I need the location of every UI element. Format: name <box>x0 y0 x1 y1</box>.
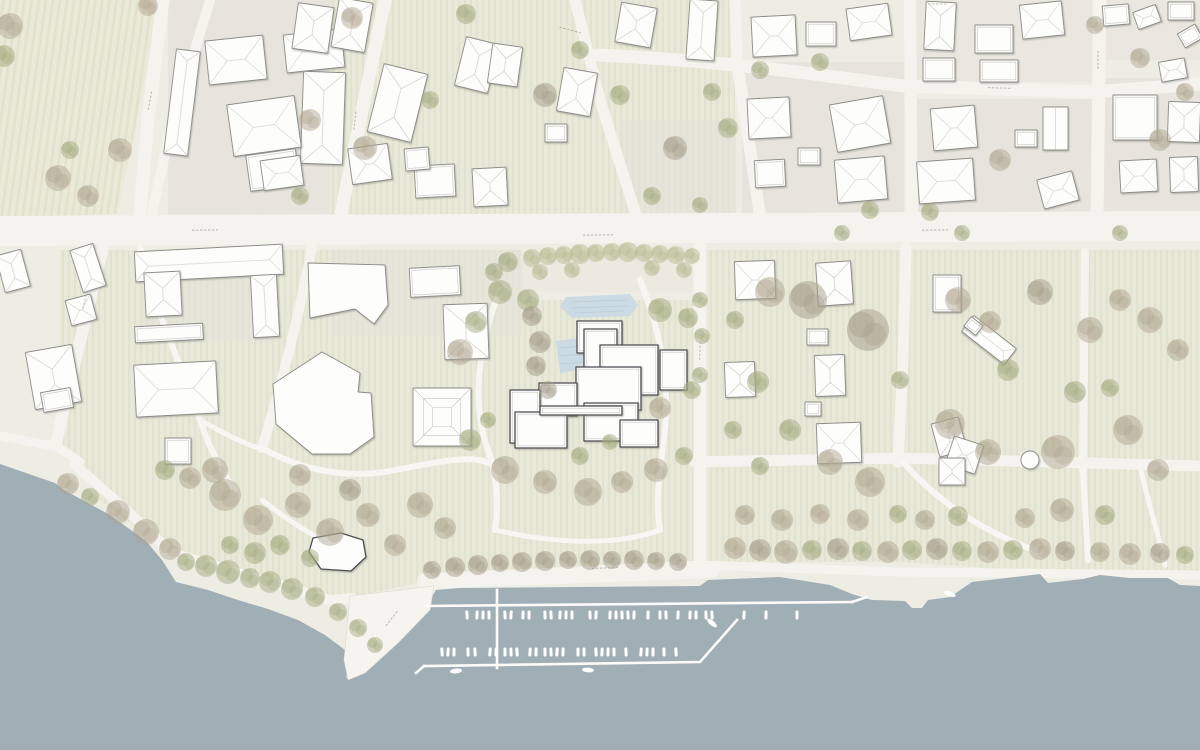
tree-canopy <box>626 249 637 260</box>
tree-canopy <box>212 465 226 479</box>
tree-canopy <box>1011 547 1022 558</box>
tree <box>353 136 377 160</box>
tree-canopy <box>289 585 301 597</box>
tree <box>935 409 965 439</box>
tree <box>703 83 721 101</box>
tree-canopy <box>538 269 547 278</box>
tree <box>580 550 600 570</box>
tree <box>587 244 605 262</box>
tree <box>459 429 481 451</box>
building-footprint <box>515 412 567 448</box>
tree <box>209 479 241 511</box>
boat <box>564 610 567 619</box>
tree-canopy <box>896 511 906 521</box>
tree <box>827 538 849 560</box>
tree-canopy <box>464 11 475 22</box>
tree-canopy <box>543 558 554 569</box>
tree <box>57 473 79 495</box>
tree <box>106 500 130 524</box>
tree-canopy <box>955 295 969 309</box>
tree-canopy <box>1063 548 1074 559</box>
road <box>0 226 1200 231</box>
tree-canopy <box>88 494 98 504</box>
tree-canopy <box>985 548 997 560</box>
tree <box>539 381 557 399</box>
building <box>250 274 279 337</box>
tree-canopy <box>1117 296 1129 308</box>
building-footprint <box>975 25 1013 53</box>
building <box>975 25 1013 53</box>
tree <box>611 471 633 493</box>
boat <box>494 647 497 656</box>
road <box>910 0 912 215</box>
tree-canopy <box>1138 55 1149 66</box>
tree <box>61 141 79 159</box>
building-footprint <box>1015 130 1037 147</box>
building <box>1167 101 1200 142</box>
boat <box>674 647 678 656</box>
building <box>814 354 845 396</box>
tree-canopy <box>650 193 660 203</box>
tree <box>847 309 889 351</box>
boat <box>704 610 707 619</box>
building <box>1021 451 1039 469</box>
building <box>829 96 891 153</box>
tree-canopy <box>146 3 157 14</box>
tree <box>724 537 746 559</box>
tree <box>1041 435 1075 469</box>
tree <box>447 339 473 365</box>
tree <box>1149 129 1171 151</box>
tree-canopy <box>743 512 754 523</box>
boat <box>446 647 449 656</box>
building <box>144 271 182 317</box>
tree <box>491 456 519 484</box>
tree <box>692 292 708 308</box>
boat <box>710 610 714 619</box>
tree-canopy <box>860 548 871 559</box>
tree <box>747 371 769 393</box>
boat <box>528 611 531 620</box>
boat <box>481 610 484 619</box>
tree-canopy <box>731 427 741 437</box>
tree-canopy <box>757 546 769 558</box>
building <box>806 22 836 46</box>
tree <box>367 637 383 653</box>
building <box>930 105 977 151</box>
tree-canopy <box>1183 552 1193 562</box>
tree <box>243 505 273 535</box>
boat <box>594 610 598 619</box>
tree <box>1137 307 1163 333</box>
tree-canopy <box>818 59 828 69</box>
tree <box>603 551 621 569</box>
tree-canopy <box>365 511 378 524</box>
boat <box>521 610 524 619</box>
boat <box>555 647 559 656</box>
design-building <box>620 420 658 447</box>
tree <box>480 412 496 428</box>
tree-canopy <box>632 557 643 568</box>
tree <box>684 248 700 264</box>
round-structure <box>1021 451 1039 469</box>
boat <box>558 610 561 619</box>
tree <box>771 509 793 531</box>
tree <box>77 185 99 207</box>
building <box>917 158 976 204</box>
tree-canopy <box>1157 136 1169 148</box>
tree-canopy <box>347 486 359 498</box>
tree-canopy <box>676 559 686 569</box>
tree <box>1109 289 1131 311</box>
tree <box>526 356 546 376</box>
building-footprint <box>923 58 955 81</box>
tree-canopy <box>1147 315 1161 329</box>
tree-canopy <box>566 557 576 567</box>
tree <box>341 7 363 29</box>
tree-canopy <box>1059 506 1072 519</box>
building <box>834 156 888 203</box>
tree <box>221 536 239 554</box>
tree-canopy <box>868 207 878 217</box>
tree-canopy <box>167 545 179 557</box>
building-footprint <box>980 60 1018 82</box>
tree <box>81 488 99 506</box>
tree-canopy <box>203 562 215 574</box>
building <box>923 58 955 81</box>
tree-canopy <box>1037 545 1049 557</box>
tree-canopy <box>827 457 841 471</box>
tree <box>155 460 175 480</box>
building <box>404 147 430 171</box>
tree <box>891 371 909 389</box>
tree <box>574 478 602 506</box>
tree-canopy <box>578 453 588 463</box>
tree <box>195 555 217 577</box>
building-footprint <box>165 438 191 464</box>
tree-canopy <box>336 609 346 619</box>
building-footprint <box>1113 95 1157 140</box>
design-building <box>660 350 687 390</box>
tree-canopy <box>506 259 517 270</box>
tree-canopy <box>803 293 824 314</box>
tree-canopy <box>835 545 847 557</box>
tree <box>618 242 638 262</box>
tree-canopy <box>1 52 13 64</box>
tree <box>1064 381 1086 403</box>
tree <box>1027 279 1053 305</box>
building <box>205 35 267 85</box>
tree <box>299 109 321 131</box>
tree-canopy <box>758 463 768 473</box>
building <box>807 329 828 345</box>
tree <box>724 421 742 439</box>
tree <box>159 538 181 560</box>
tree-canopy <box>686 315 697 326</box>
tree <box>945 287 971 313</box>
tree-canopy <box>1175 346 1187 358</box>
tree-canopy <box>657 306 670 319</box>
tree-canopy <box>910 547 921 558</box>
tree <box>1090 542 1110 562</box>
tree <box>692 367 708 383</box>
tree <box>954 225 970 241</box>
tree <box>1112 225 1128 241</box>
tree-canopy <box>682 267 691 276</box>
tree <box>1176 83 1194 101</box>
tree-canopy <box>682 453 692 463</box>
tree-canopy <box>690 253 699 262</box>
boat <box>549 610 553 619</box>
tree-canopy <box>1127 550 1139 562</box>
tree <box>802 540 822 560</box>
tree <box>240 568 260 588</box>
tree <box>1176 546 1194 564</box>
tree-canopy <box>267 578 279 590</box>
tree <box>488 280 512 304</box>
tree <box>647 552 665 570</box>
building <box>1113 95 1157 140</box>
tree <box>468 555 488 575</box>
tree <box>678 308 698 328</box>
tree <box>669 553 687 571</box>
tree <box>339 479 361 501</box>
tree-canopy <box>570 267 579 276</box>
tree <box>465 311 487 333</box>
tree <box>975 439 1001 465</box>
tree <box>329 603 347 621</box>
tree-canopy <box>855 516 867 528</box>
boat <box>475 610 478 619</box>
tree-canopy <box>356 625 366 635</box>
boat <box>503 610 506 619</box>
tree-canopy <box>248 575 259 586</box>
tree <box>751 61 769 79</box>
tree-canopy <box>546 387 556 397</box>
tree-canopy <box>55 173 69 187</box>
tree <box>1095 505 1115 525</box>
tree <box>305 587 325 607</box>
tree-canopy <box>934 545 946 557</box>
tree <box>643 187 661 205</box>
tree <box>532 264 548 280</box>
tree <box>491 554 509 572</box>
boat <box>588 610 591 619</box>
tree-canopy <box>755 378 767 390</box>
road <box>425 570 712 581</box>
tree-canopy <box>349 14 361 26</box>
tree-canopy <box>497 288 510 301</box>
tree-canopy <box>700 333 709 342</box>
tree-canopy <box>1093 22 1103 32</box>
tree-canopy <box>502 465 517 480</box>
tree <box>539 247 557 265</box>
tree <box>694 328 710 344</box>
design-building <box>515 412 567 448</box>
tree-canopy <box>1072 388 1084 400</box>
tree-canopy <box>298 193 308 203</box>
boat <box>612 647 615 656</box>
tree-canopy <box>1037 287 1051 301</box>
building <box>1019 1 1064 39</box>
boat <box>440 647 444 656</box>
tree <box>926 538 948 560</box>
tree <box>979 311 1001 333</box>
boat <box>695 611 698 620</box>
tree <box>1077 317 1103 343</box>
tree <box>535 551 555 571</box>
tree <box>902 540 922 560</box>
tree <box>423 561 441 579</box>
tree <box>952 541 972 561</box>
tree-canopy <box>698 202 707 211</box>
tree <box>726 311 744 329</box>
tree <box>997 359 1019 381</box>
tree-canopy <box>787 426 799 438</box>
tree <box>564 262 580 278</box>
tree-canopy <box>698 372 707 381</box>
building <box>1015 130 1037 147</box>
building <box>1119 159 1158 193</box>
boat <box>561 647 564 656</box>
tree <box>301 549 319 567</box>
tree-canopy <box>1023 515 1034 526</box>
tree-canopy <box>987 318 999 330</box>
tree <box>456 4 476 24</box>
tree <box>571 447 589 465</box>
boat <box>600 647 603 656</box>
tree-canopy <box>221 489 239 507</box>
tree <box>445 557 465 577</box>
tree-canopy <box>657 404 669 416</box>
tree-canopy <box>619 478 631 490</box>
boat <box>620 610 623 619</box>
boat <box>487 610 490 619</box>
tree <box>281 578 303 600</box>
tree <box>810 504 830 524</box>
tree-canopy <box>428 97 438 107</box>
tree-canopy <box>840 230 849 239</box>
tree-canopy <box>115 508 128 521</box>
tree-canopy <box>498 560 508 570</box>
tree <box>421 91 439 109</box>
building <box>798 148 820 165</box>
building <box>1168 2 1194 20</box>
tree-canopy <box>654 558 664 568</box>
tree <box>289 464 311 486</box>
tree-canopy <box>68 147 78 157</box>
tree-canopy <box>732 544 744 556</box>
tree-canopy <box>534 363 545 374</box>
tree-canopy <box>956 513 967 524</box>
tree <box>635 244 653 262</box>
tree-canopy <box>863 323 886 346</box>
tree <box>774 540 798 564</box>
tree-canopy <box>618 92 629 103</box>
tree <box>718 118 738 138</box>
tree-canopy <box>698 297 707 306</box>
tree-canopy <box>733 317 743 327</box>
tree-canopy <box>608 439 617 448</box>
boat <box>515 647 519 656</box>
tree <box>847 509 869 531</box>
tree-canopy <box>1103 512 1114 523</box>
boat <box>652 648 655 657</box>
tree <box>915 510 935 530</box>
tree <box>877 541 899 563</box>
boat <box>466 647 469 656</box>
tree <box>811 53 829 71</box>
building <box>615 2 657 48</box>
boat <box>509 647 512 656</box>
boat <box>764 610 767 619</box>
road <box>1083 252 1085 470</box>
tree-canopy <box>1183 89 1193 99</box>
tree-canopy <box>610 557 620 567</box>
boat <box>606 647 609 656</box>
tree <box>817 449 843 475</box>
tree <box>861 201 879 219</box>
tree-canopy <box>297 471 309 483</box>
building <box>165 438 191 464</box>
boat <box>577 648 580 657</box>
building-footprint <box>540 406 622 415</box>
tree-canopy <box>430 567 440 577</box>
tree-canopy <box>530 313 541 324</box>
tree <box>855 467 885 497</box>
boat <box>626 610 630 619</box>
tree-canopy <box>163 467 174 478</box>
boat <box>488 647 492 656</box>
tree-canopy <box>417 500 431 514</box>
building <box>472 167 508 207</box>
tree-canopy <box>373 642 382 651</box>
tree-canopy <box>492 269 502 279</box>
tree <box>108 138 132 162</box>
tree-canopy <box>672 144 685 157</box>
boat <box>543 610 546 619</box>
city-block <box>622 120 736 214</box>
tree-canopy <box>1054 446 1073 465</box>
tree <box>1147 459 1169 481</box>
tree-canopy <box>537 338 549 350</box>
tree <box>1029 538 1051 560</box>
tree <box>683 381 701 399</box>
tree <box>644 458 668 482</box>
tree-canopy <box>85 192 97 204</box>
tree-canopy <box>960 230 969 239</box>
boat <box>615 611 618 620</box>
tree-canopy <box>585 487 600 502</box>
tree <box>512 552 532 572</box>
tree <box>676 262 692 278</box>
tree <box>270 535 290 555</box>
tree <box>1113 415 1143 445</box>
tree-canopy <box>653 466 666 479</box>
building <box>227 96 302 157</box>
tree-canopy <box>187 474 199 486</box>
tree-canopy <box>473 318 485 330</box>
tree-canopy <box>225 568 238 581</box>
building <box>751 15 797 57</box>
tree <box>316 518 344 546</box>
tree <box>1167 339 1189 361</box>
tree <box>779 419 801 441</box>
building-footprint <box>806 22 836 46</box>
building <box>805 402 821 416</box>
tree <box>133 519 159 545</box>
tree <box>692 197 708 213</box>
